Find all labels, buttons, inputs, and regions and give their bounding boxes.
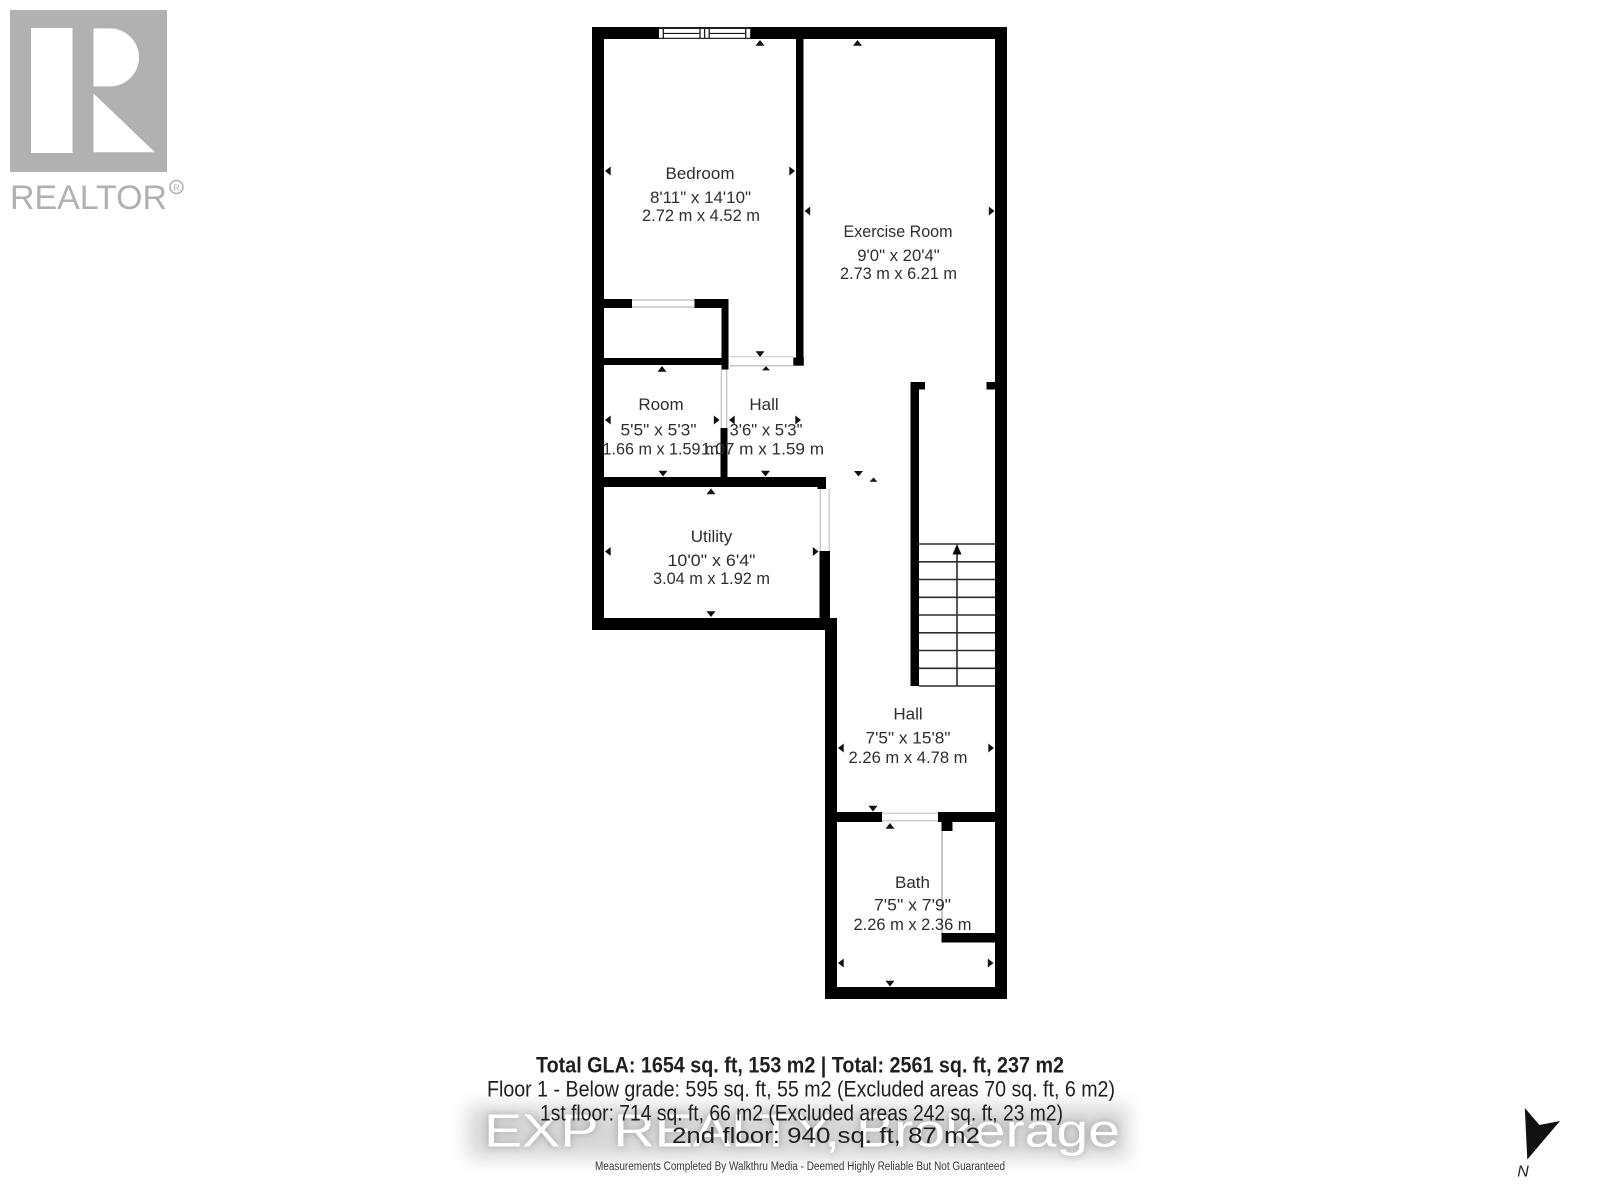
svg-text:Total GLA: 1654 sq. ft, 153 m2: Total GLA: 1654 sq. ft, 153 m2 | Total: …	[536, 1053, 1064, 1078]
svg-text:Floor 1 - Below grade: 595 sq.: Floor 1 - Below grade: 595 sq. ft, 55 m2…	[487, 1077, 1115, 1102]
svg-text:3.04 m x 1.92 m: 3.04 m x 1.92 m	[653, 569, 770, 588]
svg-text:Bath: Bath	[895, 873, 930, 892]
svg-text:7'5" x 15'8": 7'5" x 15'8"	[866, 729, 951, 748]
svg-text:3'6" x 5'3": 3'6" x 5'3"	[730, 421, 803, 440]
svg-text:Hall: Hall	[893, 705, 922, 724]
svg-text:Bedroom: Bedroom	[666, 164, 735, 183]
svg-text:2.26 m x 4.78 m: 2.26 m x 4.78 m	[849, 748, 968, 767]
svg-text:1.07 m x 1.59 m: 1.07 m x 1.59 m	[701, 440, 824, 459]
svg-text:R: R	[173, 183, 180, 193]
svg-text:Utility: Utility	[691, 527, 733, 546]
svg-text:1st floor: 714 sq. ft, 66 m2 (: 1st floor: 714 sq. ft, 66 m2 (Excluded a…	[540, 1101, 1063, 1126]
svg-text:Room: Room	[638, 395, 683, 414]
svg-text:2.26 m x 2.36 m: 2.26 m x 2.36 m	[854, 915, 972, 934]
svg-text:9'0" x 20'4": 9'0" x 20'4"	[857, 246, 940, 265]
svg-text:7'5" x 7'9": 7'5" x 7'9"	[874, 896, 951, 915]
svg-text:8'11" x 14'10": 8'11" x 14'10"	[650, 188, 751, 207]
svg-text:Exercise Room: Exercise Room	[844, 222, 953, 241]
svg-text:Measurements Completed By Walk: Measurements Completed By Walkthru Media…	[595, 1161, 1005, 1173]
svg-text:2nd floor: 940 sq. ft, 87 m2: 2nd floor: 940 sq. ft, 87 m2	[672, 1123, 980, 1148]
svg-text:5'5" x 5'3": 5'5" x 5'3"	[621, 421, 697, 440]
svg-text:10'0" x 6'4": 10'0" x 6'4"	[668, 551, 756, 570]
svg-text:N: N	[1517, 1164, 1529, 1181]
svg-text:REALTOR: REALTOR	[10, 179, 167, 217]
svg-text:2.73 m x 6.21 m: 2.73 m x 6.21 m	[840, 264, 957, 283]
svg-text:Hall: Hall	[749, 395, 778, 414]
svg-text:2.72 m x 4.52 m: 2.72 m x 4.52 m	[642, 206, 760, 225]
